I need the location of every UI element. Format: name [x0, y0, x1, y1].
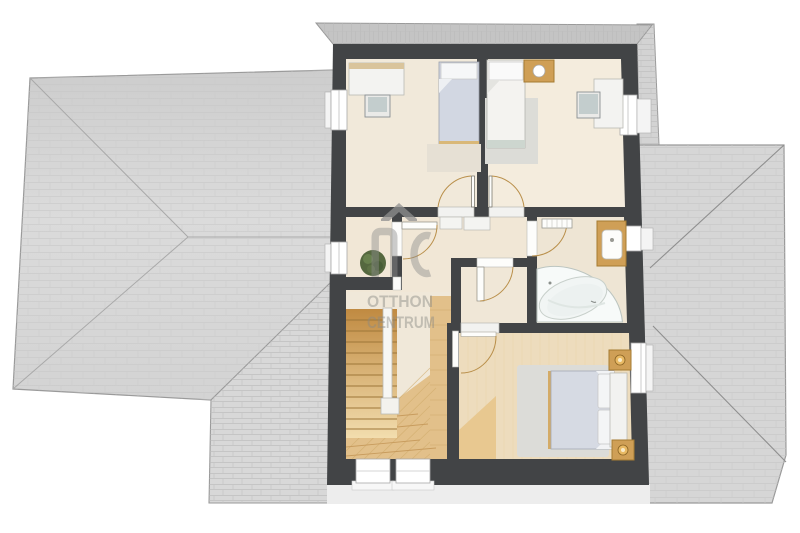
svg-text:OTTHON: OTTHON: [367, 293, 433, 311]
svg-text:CENTRUM: CENTRUM: [367, 314, 435, 332]
